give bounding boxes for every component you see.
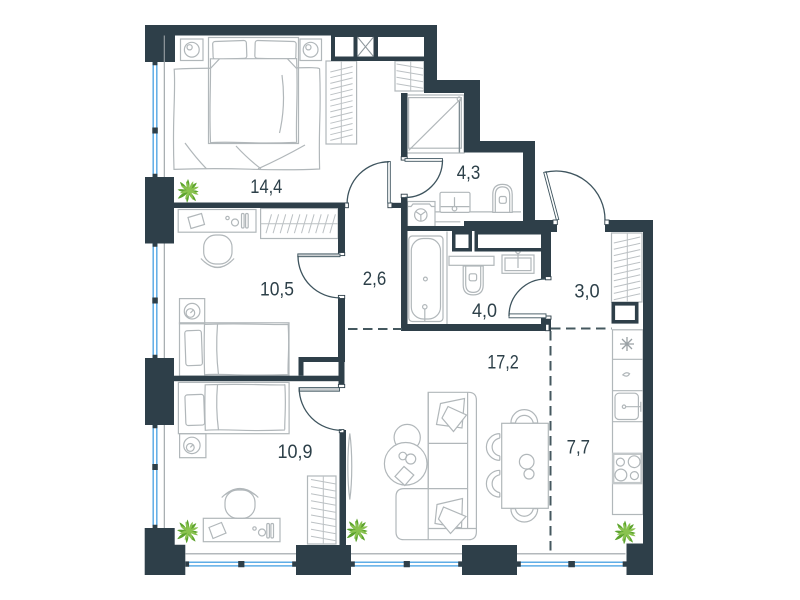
svg-text:4,3: 4,3 [457,162,481,184]
svg-text:10,5: 10,5 [260,279,294,301]
svg-text:10,9: 10,9 [278,441,313,463]
svg-text:3,0: 3,0 [574,280,599,302]
svg-text:2,6: 2,6 [363,268,387,290]
svg-text:14,4: 14,4 [250,176,282,198]
svg-text:17,2: 17,2 [487,352,519,374]
svg-text:7,7: 7,7 [567,436,590,458]
svg-text:4,0: 4,0 [472,300,497,322]
